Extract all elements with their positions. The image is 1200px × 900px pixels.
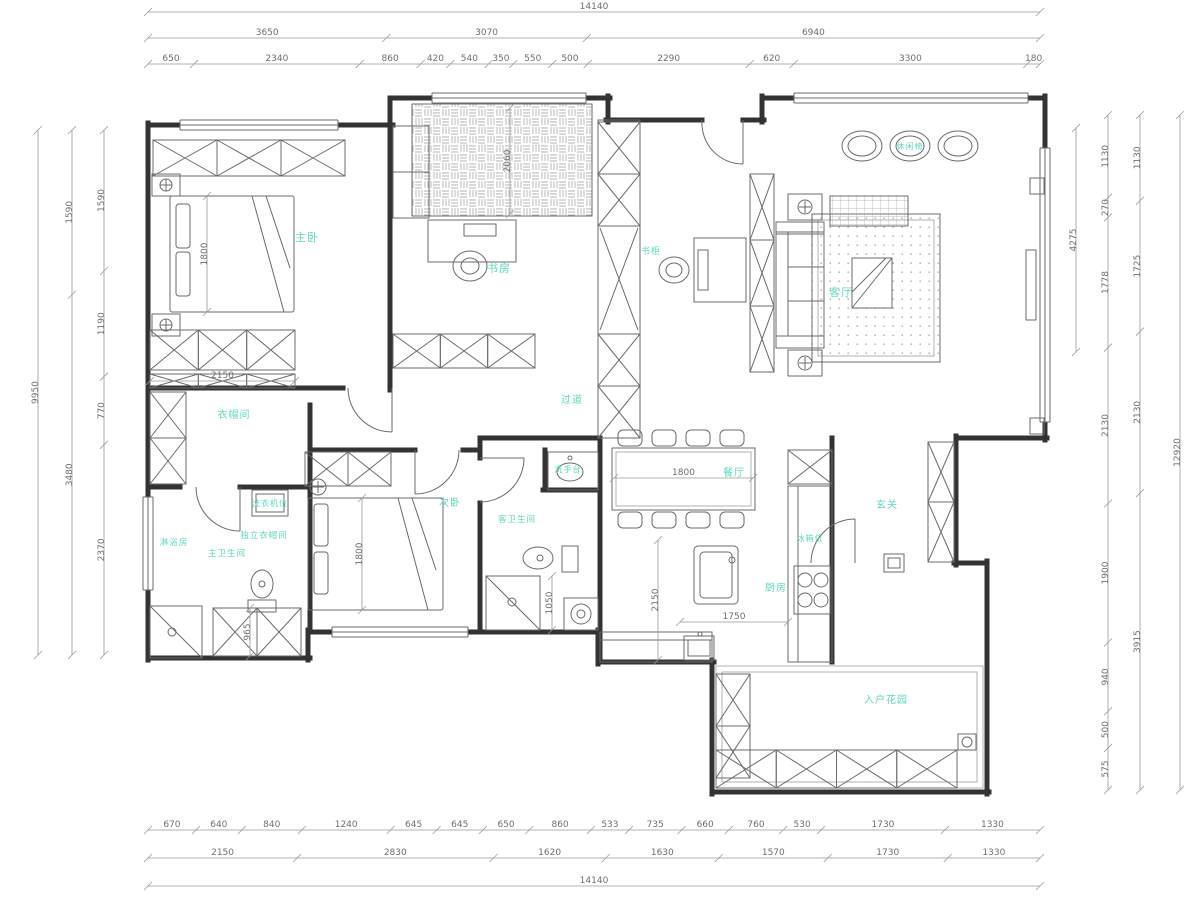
monitor [698, 250, 708, 290]
cabinet-xbox [598, 122, 640, 226]
dimension-text: 3300 [899, 54, 922, 64]
tv [1026, 250, 1036, 320]
dimension-text: 180 [1025, 54, 1042, 64]
dimension-text: 760 [747, 820, 764, 830]
floor-plan-canvas: 1414036503070694065023408604205403505505… [0, 0, 1200, 900]
dimension-text: 1730 [872, 820, 895, 830]
study-desk [428, 220, 516, 262]
dimension-text: 1800 [355, 542, 365, 565]
monitor [464, 224, 496, 236]
dimension-chain: 15903480 [65, 126, 76, 659]
bookcase-column [598, 120, 746, 438]
dimension-text: 270 [1101, 199, 1111, 216]
dimension-chain: 9950 [31, 126, 42, 659]
room-label-walkin-closet: 独立衣帽间 [240, 530, 288, 541]
room-labels: 主卧书房书柜客厅休闲椅过道衣帽间洗衣机位独立衣帽间淋浴房主卫生间次卧洗手台客卫生… [160, 141, 924, 706]
interior-dimension: 1750 [676, 612, 792, 626]
dimension-text: 1590 [65, 201, 75, 224]
dimension-text: 860 [551, 820, 568, 830]
blanket-fold [252, 196, 290, 312]
dimension-text: 1330 [981, 820, 1004, 830]
dimension-text: 1778 [1101, 271, 1111, 294]
dimension-text: 2340 [265, 54, 288, 64]
dimension-text: 770 [97, 402, 107, 419]
toilet [523, 547, 553, 569]
stove [794, 566, 830, 614]
dimension-text: 1800 [672, 468, 695, 478]
toilet [251, 570, 273, 598]
dimension-text: 1130 [1101, 145, 1111, 168]
dimension-text: 3070 [475, 28, 498, 38]
room-label-cloakroom: 衣帽间 [218, 408, 251, 421]
washing-machine [564, 598, 598, 630]
dimension-text: 1620 [538, 848, 561, 858]
interior-dimension: 1800 [355, 494, 366, 614]
dimension-text: 840 [263, 820, 280, 830]
dimension-chain: 14140 [144, 876, 1044, 890]
dimension-text: 500 [1101, 721, 1111, 738]
dimension-chain: 650234086042054035055050022906203300180 [144, 54, 1044, 68]
second-bedroom-furniture [308, 479, 443, 610]
window [332, 627, 468, 637]
dimension-text: 2150 [211, 848, 234, 858]
desk-chair [659, 257, 689, 283]
cabinet-xbox [305, 452, 391, 486]
dimension-text: 575 [1101, 760, 1111, 777]
dimension-text: 3480 [65, 463, 75, 486]
floor-drain [958, 734, 976, 750]
dimension-text: 3915 [1133, 630, 1143, 653]
garden-features [716, 666, 983, 788]
dimension-text: 1730 [876, 848, 899, 858]
desk [694, 238, 746, 302]
dimension-chain: 2150283016201630157017301330 [144, 848, 1044, 862]
glass-door [600, 228, 638, 330]
interior-dimension: 1050 [545, 572, 556, 634]
dimension-text: 860 [382, 54, 399, 64]
room-label-leisure-chair: 休闲椅 [897, 141, 924, 151]
dimension-text: 420 [427, 54, 444, 64]
dimension-text: 2370 [97, 538, 107, 561]
dimension-text: 1900 [1101, 561, 1111, 584]
room-label-entry: 玄关 [876, 498, 898, 511]
tatami-platform [412, 104, 592, 216]
window [143, 497, 153, 590]
cabinet-xbox [150, 392, 186, 484]
dimension-text: 2830 [384, 848, 407, 858]
room-label-kitchen: 厨房 [765, 581, 787, 594]
interior-dimension: 2150 [651, 536, 662, 664]
room-label-guest-bathroom: 客卫生间 [498, 514, 536, 525]
master-bed [170, 196, 294, 312]
room-label-hallway: 过道 [561, 393, 583, 406]
dimension-text: 9950 [31, 381, 41, 404]
room-label-bookcase: 书柜 [641, 245, 661, 257]
room-label-laundry-spot: 洗衣机位 [252, 498, 288, 508]
dimension-text: 4275 [1069, 229, 1079, 252]
dimension-text: 1330 [982, 848, 1005, 858]
dining-chair [618, 512, 642, 528]
dimension-text: 735 [647, 820, 664, 830]
dining-chair [720, 512, 744, 528]
room-label-living-room: 客厅 [829, 285, 853, 299]
dimension-text: 530 [794, 820, 811, 830]
dimension-text: 660 [697, 820, 714, 830]
room-label-master-bedroom: 主卧 [295, 231, 319, 244]
dimension-text: 1750 [723, 612, 746, 622]
dining-chair [652, 430, 676, 446]
room-label-entry-garden: 入户花园 [864, 693, 908, 706]
dimension-text: 645 [451, 820, 468, 830]
dimension-text: 2290 [657, 54, 680, 64]
dimension-text: 6940 [802, 28, 825, 38]
dimension-chain: 12920 [1173, 111, 1184, 794]
pillow [176, 252, 190, 296]
dimension-text: 1240 [335, 820, 358, 830]
dimension-text: 645 [405, 820, 422, 830]
cabinet-xbox [928, 442, 954, 562]
dimension-chain: 6706408401240645645650860533735660760530… [144, 820, 1044, 834]
cabinet-xbox [213, 608, 301, 656]
master-bedroom-furniture [152, 174, 294, 336]
cabinet-xbox [393, 334, 535, 368]
dimension-text: 1130 [1133, 146, 1143, 169]
dimension-text: 350 [492, 54, 509, 64]
dimension-chain: 159011907702370 [97, 126, 108, 659]
room-label-shower-room: 淋浴房 [160, 537, 189, 548]
dimension-chain: 365030706940 [144, 28, 1044, 42]
dimension-text: 620 [763, 54, 780, 64]
pillow [314, 504, 328, 546]
door-cloakroom [196, 487, 240, 531]
dimension-text: 670 [163, 820, 180, 830]
dimension-text: 3650 [256, 28, 279, 38]
door-balcony [702, 120, 743, 164]
cabinet-xbox [598, 334, 640, 438]
room-label-second-bedroom: 次卧 [439, 496, 461, 509]
dimension-annotations: 1414036503070694065023408604205403505505… [31, 2, 1184, 890]
dimension-chain: 14140 [144, 2, 1044, 16]
dimension-text: 1800 [200, 242, 210, 265]
dimension-text: 2130 [1101, 414, 1111, 437]
floor-plan-drawing: 1414036503070694065023408604205403505505… [0, 0, 1200, 900]
study-furniture [393, 104, 592, 281]
dimension-text: 650 [162, 54, 179, 64]
bench [830, 196, 908, 226]
cabinet-xbox [153, 140, 345, 176]
door-master [348, 388, 392, 432]
dimension-text: 1050 [545, 591, 555, 614]
dimension-text: 965 [243, 623, 253, 640]
dimension-chain: 4275 [1069, 124, 1080, 356]
dimension-text: 1590 [97, 189, 107, 212]
dimension-text: 533 [601, 820, 618, 830]
dining-furniture [612, 430, 755, 528]
cabinet-xbox [750, 174, 774, 372]
dining-chair [686, 512, 710, 528]
window [432, 93, 586, 103]
dimension-text: 540 [461, 54, 478, 64]
dimension-text: 1725 [1133, 255, 1143, 278]
dimension-text: 2150 [651, 588, 661, 611]
dimension-text: 650 [497, 820, 514, 830]
window [794, 93, 1028, 103]
door-second-bedroom [415, 450, 459, 494]
dining-chair [652, 512, 676, 528]
dimension-chain: 1130270177821301900940500575 [1101, 111, 1112, 794]
interior-dimension: 1800 [200, 192, 211, 316]
dimension-text: 2130 [1133, 401, 1143, 424]
dimension-text: 12920 [1173, 438, 1183, 467]
pillow [314, 552, 328, 594]
dimension-text: 940 [1101, 668, 1111, 685]
desk-chair [453, 251, 487, 281]
dimension-text: 1630 [651, 848, 674, 858]
dimension-text: 2150 [211, 371, 234, 381]
dining-table [612, 448, 755, 510]
dining-chair [720, 430, 744, 446]
cabinet-xbox [788, 450, 832, 484]
dining-chair [686, 430, 710, 446]
dimension-text: 500 [561, 54, 578, 64]
window [180, 120, 338, 130]
dimension-text: 1190 [97, 312, 107, 335]
cabinet-xbox [716, 674, 750, 778]
window [1040, 148, 1050, 422]
room-label-study: 书房 [487, 262, 511, 275]
pillow [176, 204, 190, 248]
dimension-text: 1570 [762, 848, 785, 858]
dimension-text: 2060 [503, 149, 513, 172]
entry-bench [884, 554, 904, 572]
room-label-wash-basin: 洗手台 [555, 464, 582, 474]
living-room-furniture [776, 131, 1044, 434]
dimension-text: 640 [210, 820, 227, 830]
dimension-chain: 1130172521303915 [1133, 111, 1144, 794]
dimension-text: 14140 [580, 2, 609, 12]
dimension-text: 550 [524, 54, 541, 64]
room-label-master-bathroom: 主卫生间 [208, 548, 246, 559]
room-label-fridge-spot: 冰箱位 [797, 533, 824, 543]
door-guest-bath [480, 458, 524, 502]
kitchen-furniture [600, 486, 904, 662]
room-label-dining-room: 餐厅 [723, 466, 745, 479]
dimension-text: 14140 [580, 876, 609, 886]
